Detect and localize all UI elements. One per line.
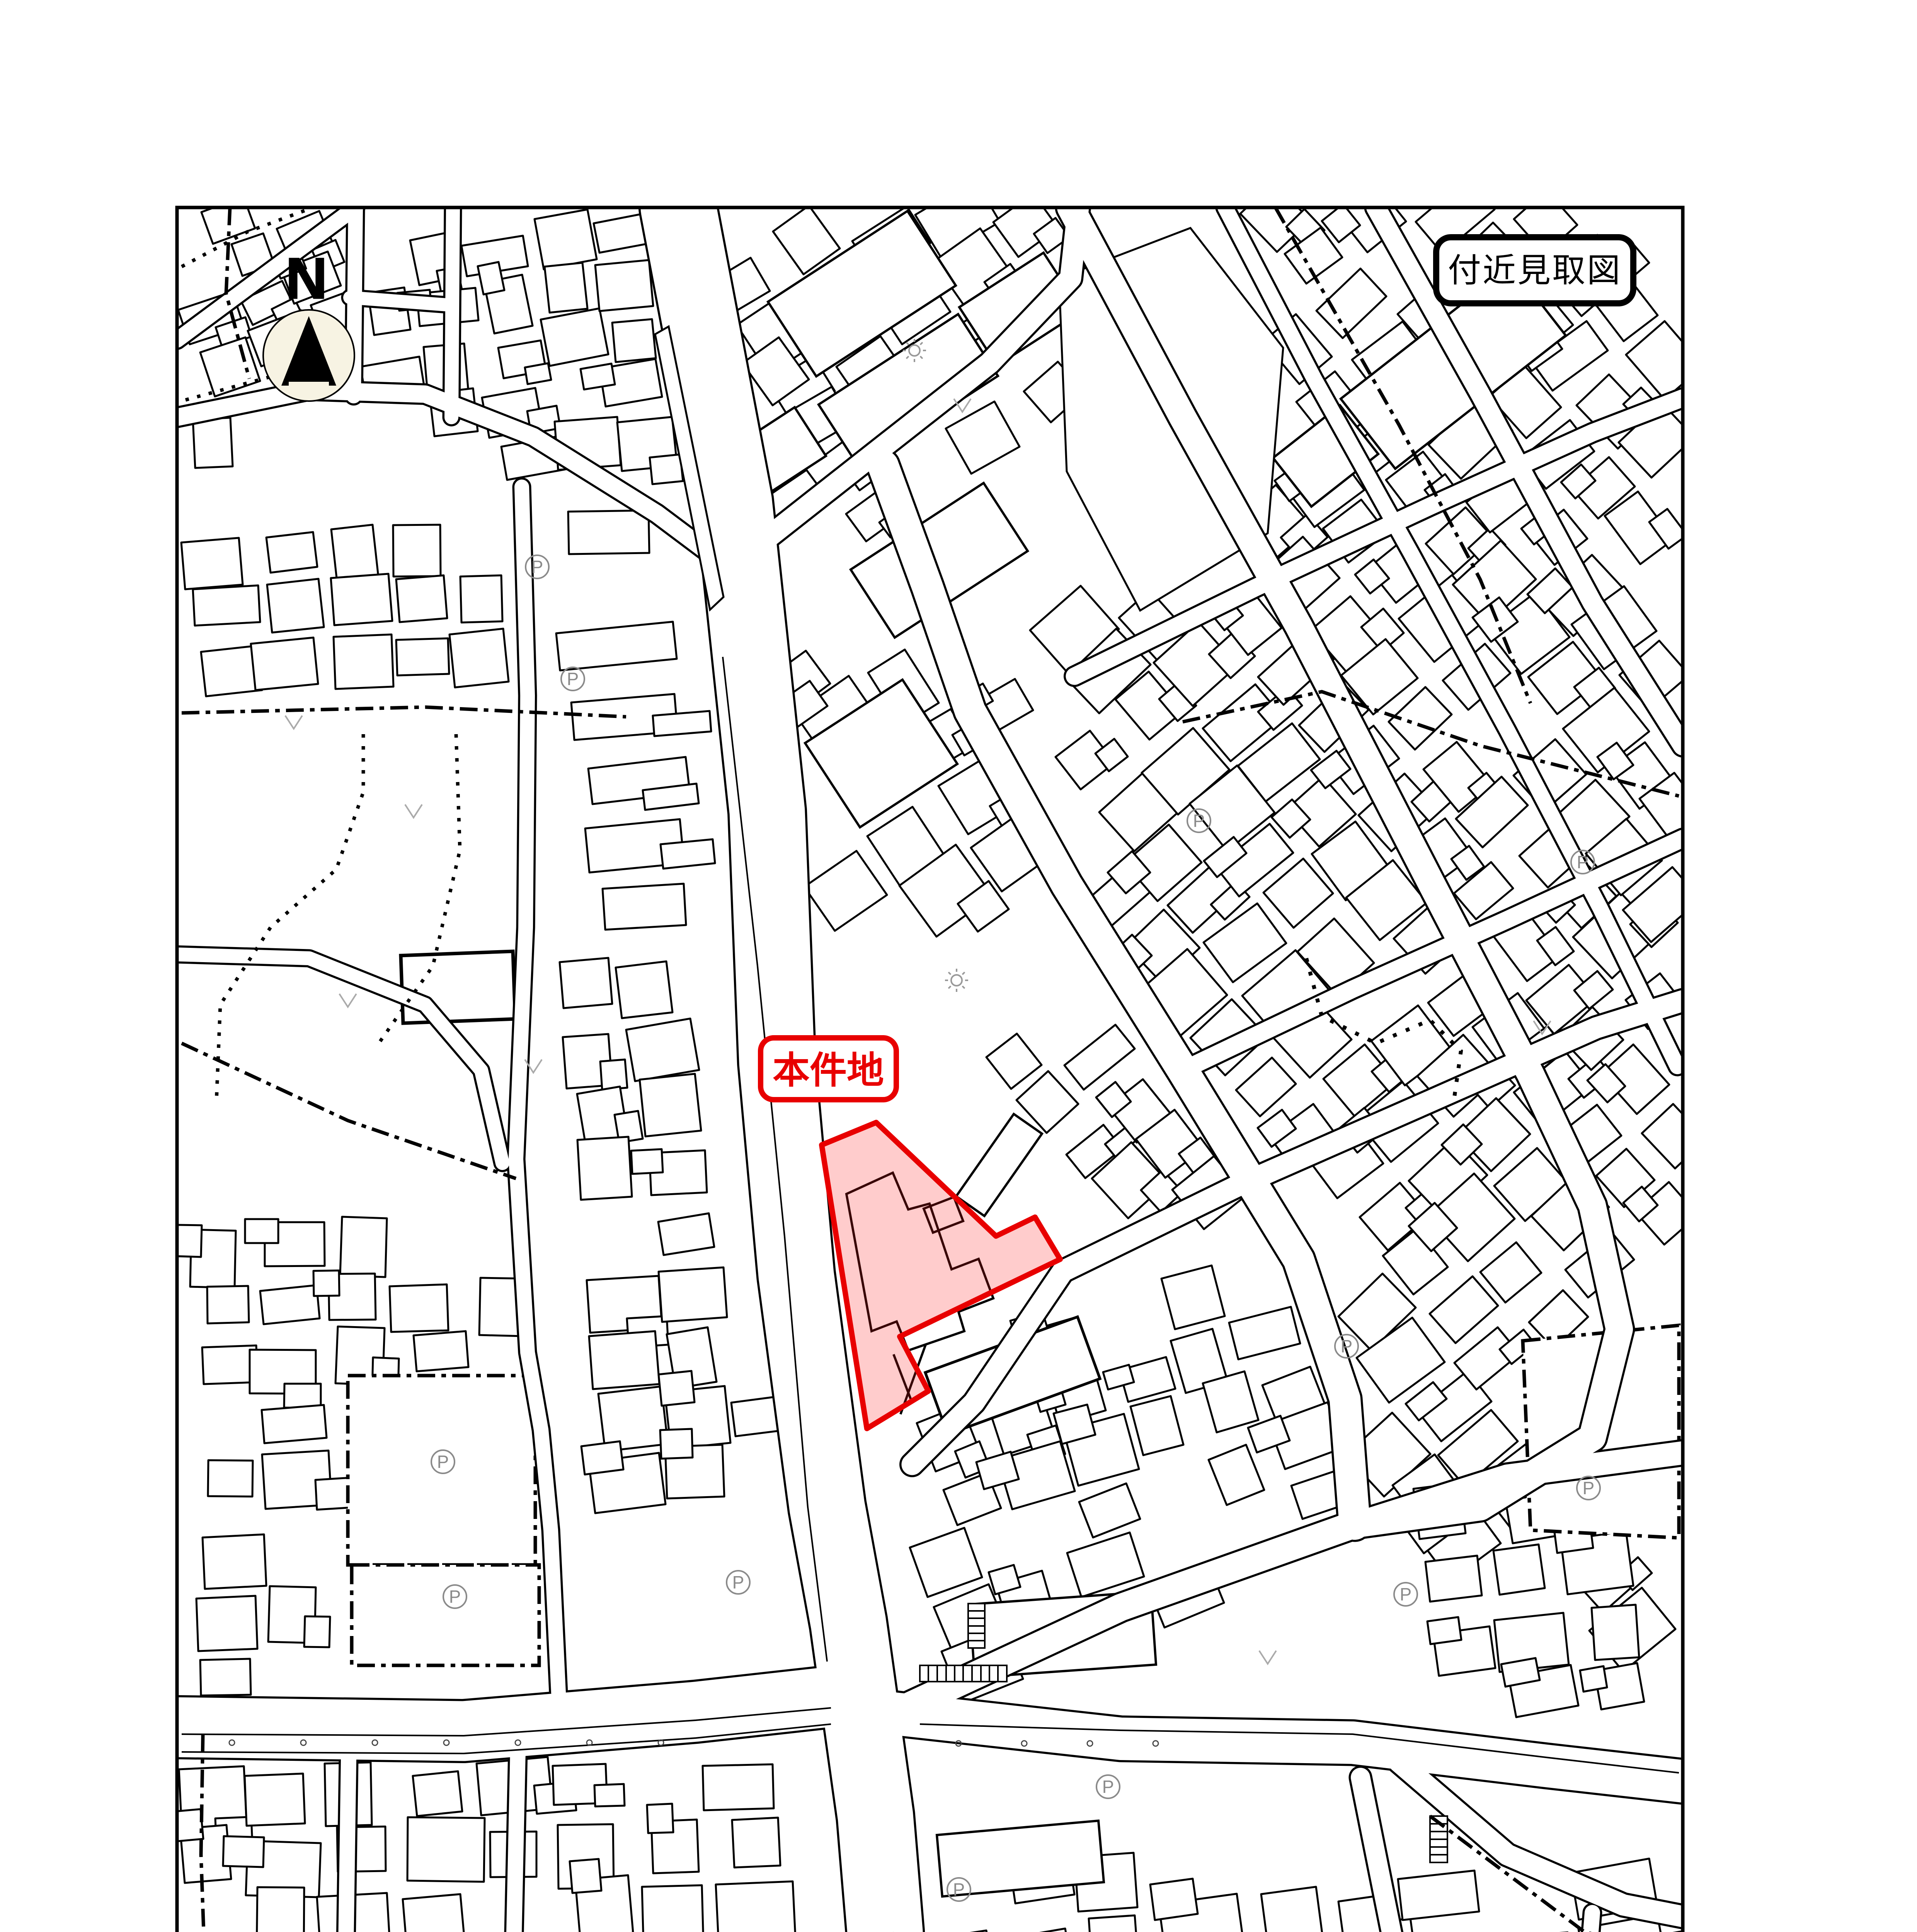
svg-text:P: P	[567, 669, 579, 689]
svg-text:P: P	[1400, 1584, 1412, 1604]
svg-text:P: P	[1577, 852, 1589, 872]
svg-text:P: P	[531, 557, 543, 577]
svg-text:P: P	[732, 1572, 744, 1592]
svg-text:P: P	[1583, 1478, 1595, 1498]
svg-text:P: P	[1102, 1777, 1114, 1797]
svg-text:本件地: 本件地	[773, 1050, 884, 1091]
svg-text:P: P	[437, 1452, 449, 1472]
svg-text:N: N	[286, 246, 327, 311]
svg-text:P: P	[449, 1587, 461, 1607]
svg-text:P: P	[953, 1879, 965, 1900]
svg-text:付近見取図: 付近見取図	[1448, 252, 1622, 289]
svg-text:P: P	[1193, 811, 1205, 831]
svg-text:P: P	[1341, 1336, 1353, 1356]
